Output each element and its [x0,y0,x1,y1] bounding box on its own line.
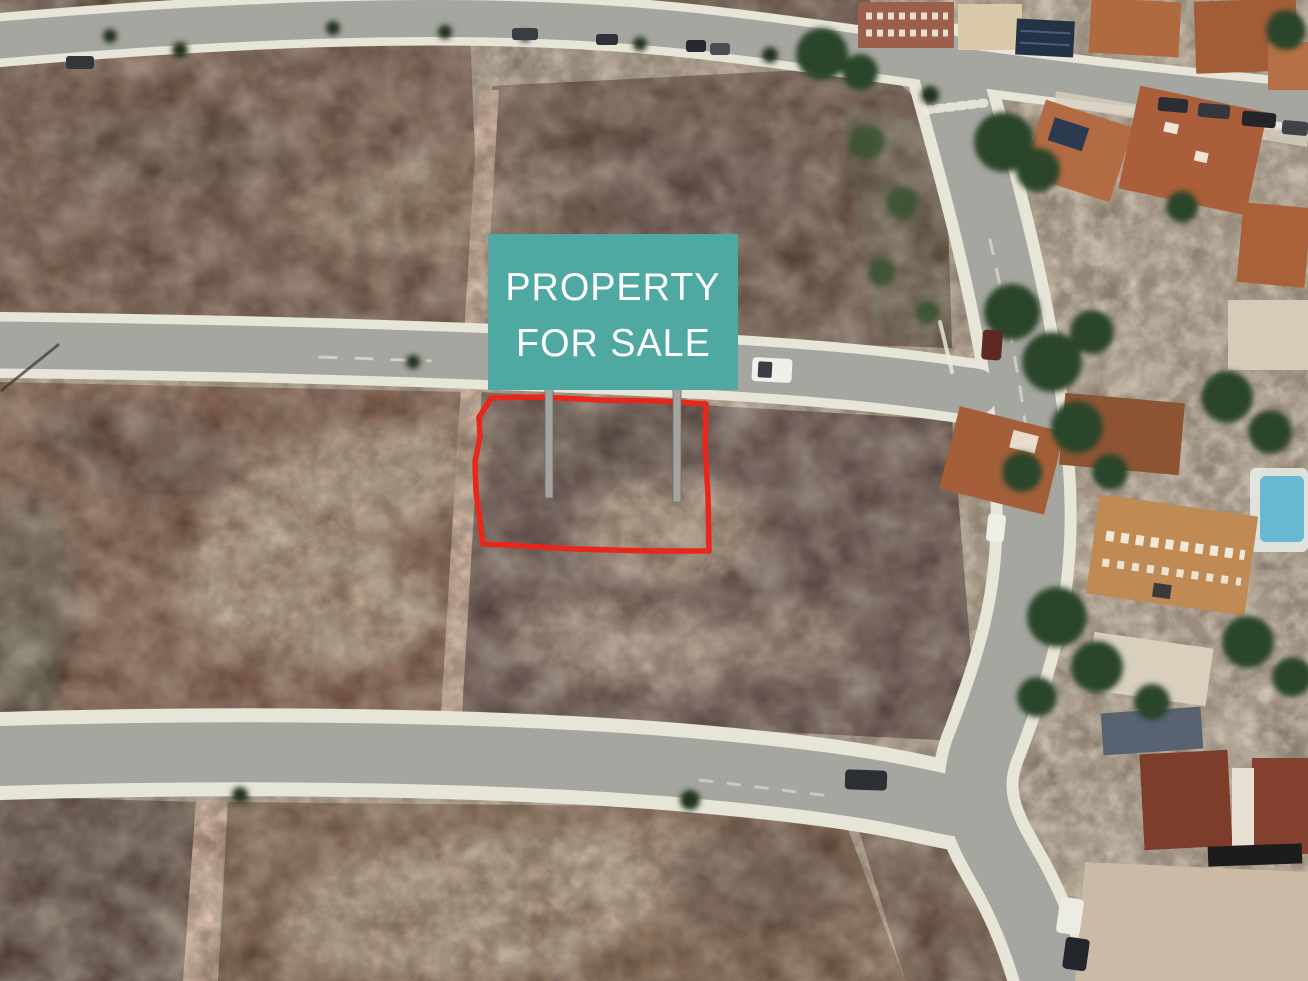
car [1062,936,1090,971]
solar-panel-strip [1208,843,1303,866]
roadside-shrub [438,25,452,39]
tree [1266,10,1306,50]
car [981,329,1003,360]
roadside-shrub [103,29,117,43]
for-sale-sign: PROPERTY FOR SALE [488,234,738,390]
house-brick-building [858,2,954,48]
tree [1016,148,1060,192]
roadside-shrub [326,21,340,35]
swimming-pool [1260,476,1304,542]
bush [849,124,885,160]
sign-post-left [545,386,553,498]
roadside-shrub [762,47,778,63]
roadside-shrub [232,787,248,803]
tree [1092,454,1128,490]
roadside-shrub [680,790,700,810]
car [66,56,94,69]
pool-area [1250,468,1308,552]
bush [915,300,939,324]
tree [1070,310,1114,354]
aerial-photo: PROPERTY FOR SALE [0,0,1308,981]
tree [1002,452,1042,492]
car [1056,897,1085,936]
roadside-shrub [633,37,647,51]
sign-post-right [673,386,681,502]
driveway [1228,300,1308,370]
car [1157,97,1188,114]
car [1241,111,1276,129]
house-roof [1237,202,1308,288]
house-dark-red-roofs [1140,750,1308,867]
tree [1134,684,1170,720]
tree [1166,191,1198,223]
tree [1071,641,1123,693]
tree [1201,371,1253,423]
car [710,43,730,55]
tree [842,54,878,90]
car [512,28,538,40]
tree [1222,616,1274,668]
aerial-photo-canvas [0,0,1308,981]
bush [868,258,896,286]
house-roof [1089,0,1182,57]
car-white-van [751,357,792,383]
roadside-shrub [406,355,420,369]
roadside-shrub [172,42,188,58]
car [686,40,706,52]
tree [1017,677,1057,717]
car [986,513,1007,543]
tree [796,28,848,80]
car [596,34,618,45]
sign-line-1: PROPERTY [505,268,720,307]
tree [1051,401,1103,453]
tree [1248,410,1292,454]
car [1281,120,1308,136]
car [845,769,888,790]
sign-line-2: FOR SALE [516,324,711,363]
tree [1027,587,1087,647]
bush [886,186,918,218]
roadside-shrub [921,86,939,104]
car [1197,103,1230,120]
bottom-right-ground [1075,862,1308,981]
